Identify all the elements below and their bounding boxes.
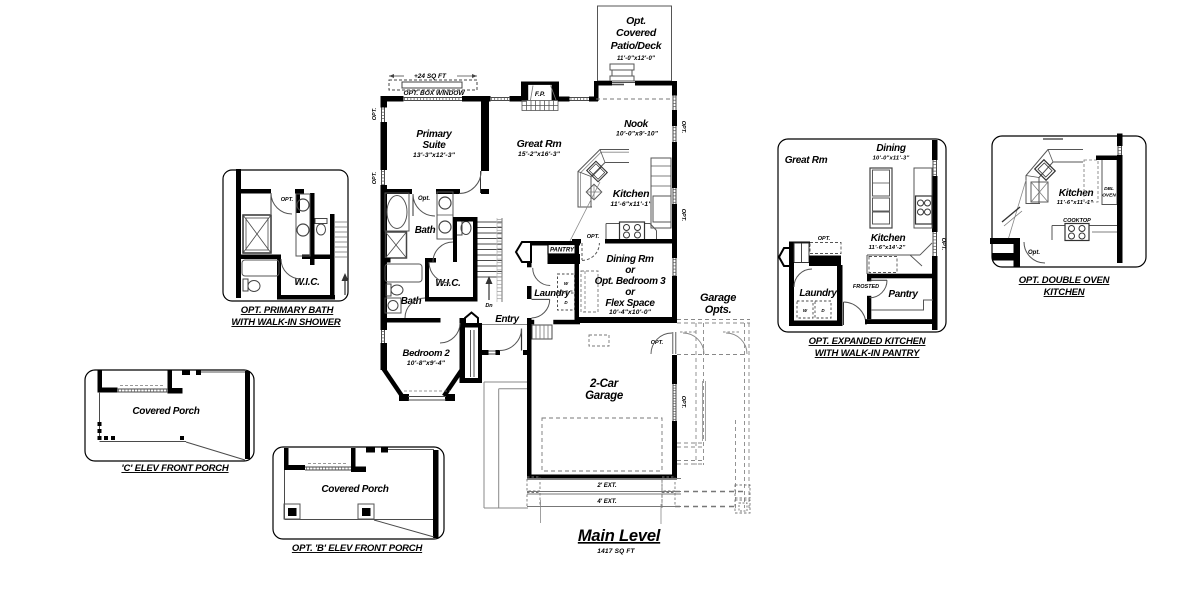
svg-text:OPT. BOX WINDOW: OPT. BOX WINDOW — [404, 90, 466, 97]
svg-text:OPT.: OPT. — [940, 238, 946, 251]
svg-text:10'-0"x9'-10": 10'-0"x9'-10" — [616, 131, 659, 138]
svg-text:OPT.: OPT. — [680, 121, 686, 134]
svg-text:Garage: Garage — [585, 390, 624, 402]
svg-text:OVEN: OVEN — [1102, 193, 1116, 199]
svg-text:10'-0"x11'-3": 10'-0"x11'-3" — [873, 156, 910, 162]
svg-text:11'-0"x12'-0": 11'-0"x12'-0" — [617, 56, 655, 62]
svg-text:OPT.: OPT. — [680, 209, 686, 222]
svg-text:Kitchen: Kitchen — [871, 233, 906, 244]
svg-text:FROSTED: FROSTED — [853, 284, 879, 290]
svg-text:13'-3"x12'-3": 13'-3"x12'-3" — [413, 152, 456, 159]
svg-text:10'-4"x10'-0": 10'-4"x10'-0" — [609, 309, 652, 316]
svg-text:15'-2"x16'-3": 15'-2"x16'-3" — [518, 151, 561, 158]
svg-text:Opts.: Opts. — [705, 304, 732, 316]
svg-text:OPT. PRIMARY BATH: OPT. PRIMARY BATH — [241, 305, 335, 316]
svg-text:OPT. EXPANDED KITCHEN: OPT. EXPANDED KITCHEN — [809, 336, 927, 347]
svg-text:Covered Porch: Covered Porch — [321, 484, 388, 495]
svg-text:Opt.: Opt. — [1028, 250, 1040, 256]
svg-text:1417 SQ FT: 1417 SQ FT — [597, 548, 635, 555]
svg-text:11'-6"x11'-1": 11'-6"x11'-1" — [1057, 200, 1093, 206]
svg-text:Bedroom 2: Bedroom 2 — [403, 348, 451, 359]
svg-text:Dn: Dn — [485, 303, 493, 309]
svg-text:Opt.: Opt. — [626, 15, 646, 27]
svg-text:Laundry: Laundry — [799, 288, 837, 299]
svg-text:F.P.: F.P. — [535, 91, 546, 98]
svg-text:Entry: Entry — [495, 314, 519, 325]
svg-text:OPT.: OPT. — [680, 396, 686, 409]
svg-text:Laundry: Laundry — [534, 288, 570, 299]
svg-text:WITH WALK-IN SHOWER: WITH WALK-IN SHOWER — [231, 317, 340, 328]
svg-text:OPT. DOUBLE OVEN: OPT. DOUBLE OVEN — [1019, 275, 1111, 286]
svg-text:Great Rm: Great Rm — [517, 138, 562, 150]
svg-text:or: or — [625, 265, 636, 276]
svg-text:+24 SQ FT: +24 SQ FT — [414, 73, 447, 80]
svg-text:WITH WALK-IN PANTRY: WITH WALK-IN PANTRY — [815, 348, 921, 359]
svg-text:KITCHEN: KITCHEN — [1044, 287, 1086, 298]
svg-text:PANTRY: PANTRY — [550, 248, 575, 254]
svg-text:OPT.: OPT. — [372, 107, 378, 120]
svg-text:Bath: Bath — [401, 296, 422, 307]
svg-text:OPT. 'B' ELEV FRONT PORCH: OPT. 'B' ELEV FRONT PORCH — [292, 543, 424, 554]
svg-text:Nook: Nook — [624, 119, 649, 130]
svg-text:2' EXT.: 2' EXT. — [596, 483, 617, 489]
svg-text:Garage: Garage — [700, 292, 736, 304]
svg-text:Great Rm: Great Rm — [785, 155, 828, 166]
svg-text:4' EXT.: 4' EXT. — [596, 499, 617, 505]
svg-text:Covered: Covered — [616, 27, 657, 39]
svg-text:Covered Porch: Covered Porch — [132, 406, 199, 417]
svg-text:DBL: DBL — [1104, 186, 1114, 192]
svg-text:10'-8"x9'-4": 10'-8"x9'-4" — [407, 360, 446, 367]
svg-text:Dining: Dining — [876, 143, 905, 154]
svg-text:Pantry: Pantry — [888, 289, 918, 300]
svg-text:or: or — [625, 287, 636, 298]
svg-text:OPT.: OPT. — [372, 171, 378, 184]
svg-text:Primary: Primary — [416, 129, 452, 140]
svg-text:Dining Rm: Dining Rm — [606, 254, 654, 265]
svg-text:11'-6"x11'-1": 11'-6"x11'-1" — [610, 201, 652, 208]
svg-text:OPT.: OPT. — [818, 236, 831, 242]
svg-text:Main Level: Main Level — [578, 527, 661, 545]
svg-text:11'-6"x14'-2": 11'-6"x14'-2" — [869, 245, 906, 251]
svg-text:OPT.: OPT. — [587, 234, 600, 240]
svg-text:Patio/Deck: Patio/Deck — [611, 40, 663, 52]
svg-text:Flex Space: Flex Space — [605, 298, 655, 309]
svg-text:Opt. Bedroom 3: Opt. Bedroom 3 — [595, 276, 667, 287]
svg-text:Bath: Bath — [415, 225, 436, 236]
svg-text:'C' ELEV FRONT PORCH: 'C' ELEV FRONT PORCH — [121, 463, 229, 474]
svg-text:2-Car: 2-Car — [589, 378, 619, 390]
svg-text:Kitchen: Kitchen — [613, 188, 649, 200]
svg-text:Kitchen: Kitchen — [1059, 188, 1094, 199]
svg-text:Opt.: Opt. — [418, 196, 430, 202]
svg-text:OPT.: OPT. — [281, 197, 294, 203]
svg-text:Suite: Suite — [423, 140, 447, 151]
